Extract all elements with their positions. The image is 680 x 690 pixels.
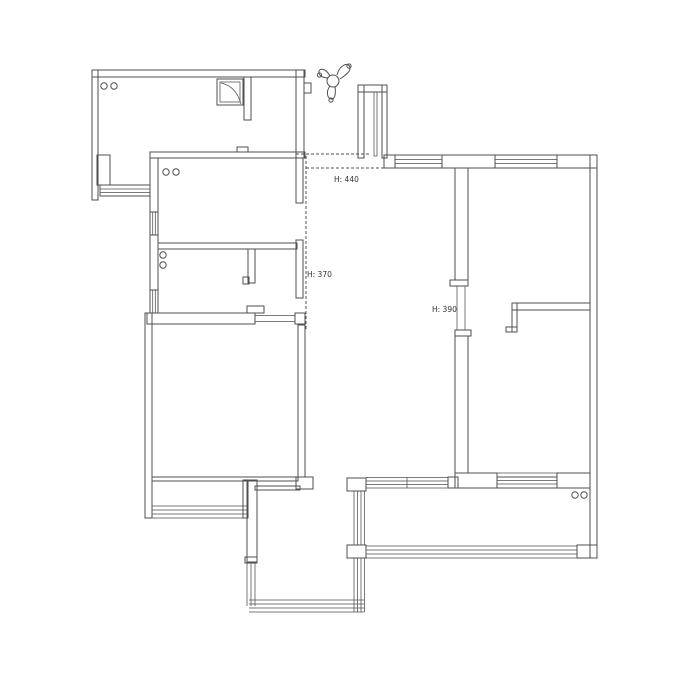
north-window-left bbox=[395, 155, 442, 168]
balcony-walls bbox=[245, 480, 300, 563]
floor-plan-canvas: H: 440 H: 370 H: 390 bbox=[0, 0, 680, 690]
east-exterior-wall bbox=[590, 155, 597, 558]
height-label-390: H: 390 bbox=[432, 305, 457, 314]
height-label-370: H: 370 bbox=[307, 270, 332, 279]
fixture-circle-pair-room1 bbox=[163, 169, 179, 175]
room2-west-window bbox=[150, 290, 158, 313]
floor-plan-svg: H: 440 H: 370 H: 390 bbox=[0, 0, 680, 690]
east-bedroom-south-window bbox=[497, 477, 557, 488]
height-label-440: H: 440 bbox=[334, 175, 359, 184]
room1-west-window bbox=[150, 212, 158, 235]
living-east-partition bbox=[450, 168, 471, 473]
utility-room-sliding-door bbox=[366, 477, 458, 488]
balcony-posts bbox=[347, 478, 366, 558]
fixture-circle-pair-utility bbox=[572, 492, 587, 498]
bedroom3-walls bbox=[145, 313, 313, 518]
bedroom3-bay-window bbox=[152, 506, 247, 518]
north-exterior-wall bbox=[384, 155, 597, 168]
fixture-circle-pair-kitchen bbox=[101, 83, 117, 89]
north-window-right bbox=[495, 155, 557, 168]
east-bedrooms-divider bbox=[506, 303, 590, 332]
fixture-circle-pair-room2 bbox=[160, 252, 166, 268]
compass-north-arrow-icon bbox=[317, 64, 351, 102]
entry-vestibule-walls bbox=[358, 85, 387, 158]
fridge-symbol bbox=[217, 79, 243, 105]
kitchen-walls bbox=[92, 70, 311, 200]
utility-room-south-window bbox=[366, 545, 597, 558]
kitchen-bottom-window bbox=[100, 185, 150, 196]
living-room-beam-dashes bbox=[296, 154, 455, 330]
room2-walls bbox=[147, 249, 305, 324]
